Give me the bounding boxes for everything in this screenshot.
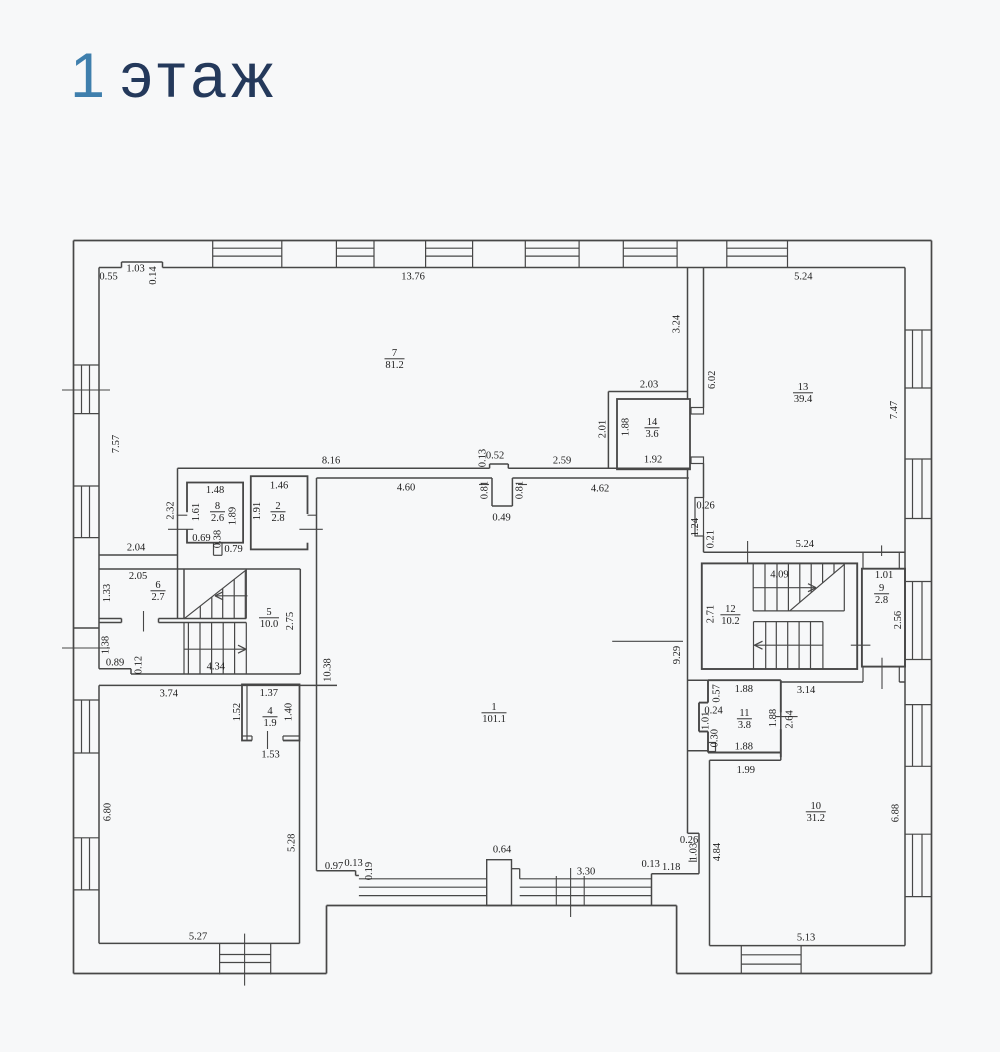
svg-text:2.8: 2.8 <box>875 595 888 606</box>
svg-text:2.01: 2.01 <box>598 420 609 438</box>
svg-text:0.49: 0.49 <box>492 513 510 524</box>
svg-text:1.88: 1.88 <box>621 418 632 436</box>
svg-text:0.14: 0.14 <box>148 266 159 285</box>
svg-text:1.46: 1.46 <box>270 481 288 492</box>
svg-text:0.26: 0.26 <box>696 501 714 512</box>
svg-text:0.19: 0.19 <box>364 862 375 880</box>
svg-text:4: 4 <box>267 706 273 717</box>
svg-text:0.55: 0.55 <box>99 272 117 283</box>
svg-text:1.99: 1.99 <box>737 765 755 776</box>
svg-text:1.18: 1.18 <box>662 862 680 873</box>
svg-text:1.40: 1.40 <box>284 703 295 721</box>
svg-text:2.32: 2.32 <box>166 501 177 519</box>
svg-text:5.28: 5.28 <box>287 834 298 852</box>
svg-text:0.81: 0.81 <box>480 481 491 499</box>
svg-text:3.8: 3.8 <box>738 720 751 731</box>
svg-text:0.12: 0.12 <box>134 656 145 674</box>
svg-text:0.81: 0.81 <box>515 481 526 499</box>
svg-text:6.80: 6.80 <box>103 803 114 821</box>
svg-text:3.24: 3.24 <box>672 314 683 333</box>
svg-text:4.09: 4.09 <box>770 569 788 580</box>
svg-text:1.38: 1.38 <box>101 636 112 654</box>
svg-text:0.69: 0.69 <box>192 533 210 544</box>
svg-text:3.6: 3.6 <box>645 429 658 440</box>
svg-text:5.24: 5.24 <box>796 539 815 550</box>
svg-text:2.8: 2.8 <box>271 513 284 524</box>
svg-text:1.01: 1.01 <box>875 570 893 581</box>
svg-text:4.34: 4.34 <box>207 662 226 673</box>
svg-text:1.88: 1.88 <box>735 684 753 695</box>
svg-text:10.0: 10.0 <box>260 619 278 630</box>
svg-text:12: 12 <box>725 604 736 615</box>
svg-text:13.76: 13.76 <box>401 272 425 283</box>
svg-text:1.33: 1.33 <box>102 584 113 602</box>
svg-text:2.04: 2.04 <box>127 543 146 554</box>
svg-text:1.37: 1.37 <box>260 688 278 699</box>
svg-text:1: 1 <box>491 702 496 713</box>
svg-text:1.48: 1.48 <box>206 485 224 496</box>
svg-text:0.13: 0.13 <box>344 858 362 869</box>
svg-text:31.2: 31.2 <box>807 813 825 824</box>
svg-text:6.88: 6.88 <box>891 804 902 822</box>
svg-text:1.24: 1.24 <box>690 517 701 536</box>
svg-text:1.91: 1.91 <box>252 502 263 520</box>
svg-text:8.16: 8.16 <box>322 456 340 467</box>
svg-text:0.64: 0.64 <box>493 845 512 856</box>
svg-text:101.1: 101.1 <box>482 714 506 725</box>
svg-text:8: 8 <box>215 501 220 512</box>
svg-text:2.56: 2.56 <box>893 611 904 629</box>
svg-text:2.71: 2.71 <box>706 605 717 623</box>
svg-text:0.13: 0.13 <box>642 859 660 870</box>
svg-text:3.30: 3.30 <box>577 867 595 878</box>
svg-text:1.03: 1.03 <box>126 264 144 275</box>
svg-text:4.60: 4.60 <box>397 483 415 494</box>
svg-text:7.47: 7.47 <box>889 401 900 419</box>
svg-text:10: 10 <box>811 801 822 812</box>
svg-text:39.4: 39.4 <box>794 394 813 405</box>
svg-text:1.53: 1.53 <box>261 750 279 761</box>
svg-text:13: 13 <box>798 382 809 393</box>
svg-text:1.61: 1.61 <box>191 503 202 521</box>
svg-text:4.84: 4.84 <box>712 842 723 861</box>
svg-text:0.52: 0.52 <box>486 451 504 462</box>
svg-text:1.89: 1.89 <box>228 507 239 525</box>
svg-text:9: 9 <box>879 583 884 594</box>
svg-text:1.03: 1.03 <box>689 843 700 861</box>
svg-text:1.52: 1.52 <box>232 703 243 721</box>
svg-text:0.38: 0.38 <box>213 530 224 548</box>
svg-text:0.30: 0.30 <box>710 729 721 747</box>
svg-text:3.14: 3.14 <box>797 685 816 696</box>
svg-text:10.2: 10.2 <box>721 616 739 627</box>
svg-text:2.59: 2.59 <box>553 456 571 467</box>
svg-text:2.7: 2.7 <box>151 592 164 603</box>
svg-text:2.75: 2.75 <box>285 612 296 630</box>
svg-text:81.2: 81.2 <box>385 360 403 371</box>
svg-text:2: 2 <box>275 501 280 512</box>
svg-text:5: 5 <box>266 607 271 618</box>
svg-text:0.13: 0.13 <box>478 449 489 467</box>
svg-text:1.88: 1.88 <box>768 709 779 727</box>
svg-text:2.03: 2.03 <box>640 380 658 391</box>
svg-text:2.64: 2.64 <box>785 709 796 728</box>
svg-text:11: 11 <box>739 708 749 719</box>
svg-text:2.6: 2.6 <box>211 513 224 524</box>
svg-text:2.05: 2.05 <box>129 571 147 582</box>
svg-text:0.21: 0.21 <box>706 530 717 548</box>
svg-text:1.88: 1.88 <box>735 742 753 753</box>
svg-text:0.89: 0.89 <box>106 658 124 669</box>
svg-text:1.92: 1.92 <box>644 455 662 466</box>
svg-text:6.02: 6.02 <box>707 371 718 389</box>
svg-text:3.74: 3.74 <box>160 689 179 700</box>
svg-text:5.13: 5.13 <box>797 933 815 944</box>
svg-text:14: 14 <box>647 417 658 428</box>
svg-text:5.24: 5.24 <box>794 272 813 283</box>
svg-text:9.29: 9.29 <box>672 646 683 664</box>
svg-text:4.62: 4.62 <box>591 484 609 495</box>
svg-text:10.38: 10.38 <box>323 658 334 682</box>
svg-text:1.01: 1.01 <box>701 712 712 730</box>
svg-text:7: 7 <box>392 348 397 359</box>
svg-text:0.79: 0.79 <box>224 544 242 555</box>
svg-text:6: 6 <box>155 580 160 591</box>
svg-text:0.57: 0.57 <box>711 684 722 702</box>
svg-text:0.97: 0.97 <box>325 861 343 872</box>
svg-text:1.9: 1.9 <box>263 718 276 729</box>
svg-text:5.27: 5.27 <box>189 932 207 943</box>
svg-text:7.57: 7.57 <box>111 435 122 453</box>
